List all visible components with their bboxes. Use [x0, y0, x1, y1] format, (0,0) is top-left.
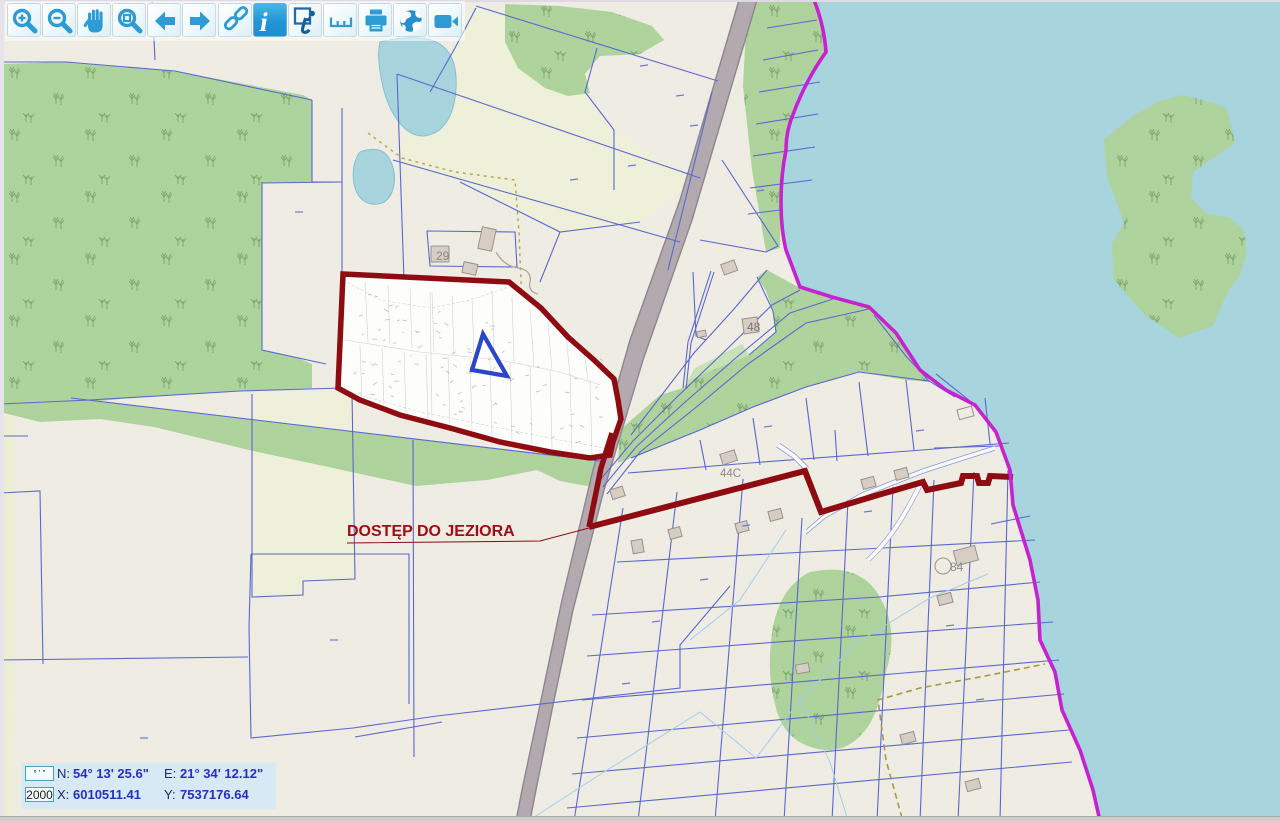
svg-text:i: i [257, 7, 270, 37]
svg-text:84: 84 [950, 560, 964, 574]
svg-text:48: 48 [747, 320, 761, 334]
svg-text:DOSTĘP DO JEZIORA: DOSTĘP DO JEZIORA [347, 523, 515, 540]
svg-text:44C: 44C [720, 468, 741, 480]
svg-text:29: 29 [436, 249, 450, 263]
